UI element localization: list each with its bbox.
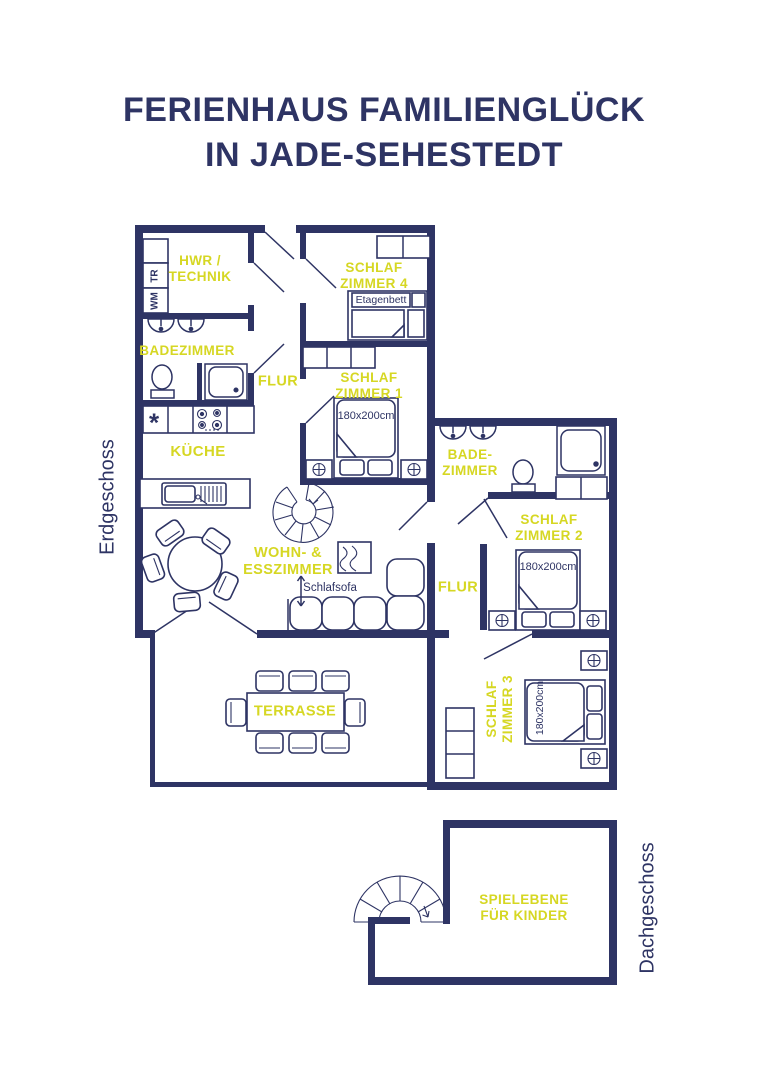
bed3-size-label: 180x200cm — [534, 681, 546, 735]
room-label-badezimmer2: BADE- ZIMMER — [442, 447, 498, 479]
sofa-label: Schlafsofa — [303, 582, 357, 594]
room-label-flur1: FLUR — [258, 373, 298, 390]
room-label-hwr: HWR / TECHNIK — [169, 253, 232, 285]
room-label-wohnesszimmer: WOHN- & ESSZIMMER — [243, 545, 333, 579]
entry-door — [265, 232, 294, 259]
bed2-size-label: 180x200cm — [520, 561, 577, 573]
room-label-spielebene: SPIELEBENE FÜR KINDER — [479, 892, 569, 924]
chair — [322, 671, 349, 691]
bedroom1-door — [306, 396, 334, 423]
chair — [226, 699, 246, 726]
room-label-schlafzimmer4: SCHLAF ZIMMER 4 — [340, 260, 408, 292]
bedroom3-door — [484, 634, 532, 659]
shower-icon — [205, 364, 247, 400]
chair — [256, 733, 283, 753]
sink-icon — [470, 426, 496, 439]
hall2-door — [399, 502, 427, 530]
bedroom2-furniture — [489, 477, 607, 630]
room-label-flur2: FLUR — [438, 579, 478, 596]
toilet-icon — [512, 460, 535, 492]
chair — [289, 733, 316, 753]
hwr-door — [254, 263, 284, 292]
room-label-badezimmer1: BADEZIMMER — [139, 343, 235, 359]
bed1-size-label: 180x200cm — [338, 410, 395, 422]
dryer-label: TR — [150, 269, 161, 282]
sink-icon — [178, 319, 204, 332]
dining-table — [140, 518, 240, 612]
rug — [338, 542, 371, 573]
chair — [289, 671, 316, 691]
terrace-double-door — [152, 602, 257, 634]
bath2-door — [458, 498, 488, 524]
room-label-schlafzimmer2: SCHLAF ZIMMER 2 — [515, 512, 583, 544]
spiral-staircase-ground — [273, 483, 334, 542]
bedroom4-door — [306, 259, 336, 288]
floor-label-erdgeschoss: Erdgeschoss — [97, 439, 120, 555]
wardrobe — [556, 477, 607, 499]
chair — [322, 733, 349, 753]
wardrobe — [377, 236, 430, 258]
bunk-bed-label: Etagenbett — [356, 294, 407, 306]
floor-label-dachgeschoss: Dachgeschoss — [637, 842, 660, 973]
chair — [256, 671, 283, 691]
spiral-staircase-attic — [354, 876, 446, 922]
kitchen-island — [140, 479, 250, 508]
bedroom2-door — [484, 499, 507, 538]
room-label-schlafzimmer3: SCHLAF ZIMMER 3 — [484, 675, 516, 743]
room-label-kueche: KÜCHE — [170, 443, 225, 461]
bath1-door — [254, 344, 284, 373]
sink-icon — [440, 426, 466, 439]
toilet-icon — [151, 365, 174, 398]
shower-icon — [557, 426, 605, 475]
washer-label: WM — [150, 292, 161, 310]
chair — [345, 699, 365, 726]
bedroom3-furniture — [446, 651, 607, 778]
floorplan-page: FERIENHAUS FAMILIENGLÜCK IN JADE-SEHESTE… — [0, 0, 768, 1086]
room-label-schlafzimmer1: SCHLAF ZIMMER 1 — [335, 370, 403, 402]
freezer-icon: * — [149, 408, 159, 439]
sink-icon — [148, 319, 174, 332]
wardrobe — [446, 708, 474, 778]
room-label-terrasse: TERRASSE — [254, 703, 336, 720]
wardrobe — [303, 347, 375, 368]
